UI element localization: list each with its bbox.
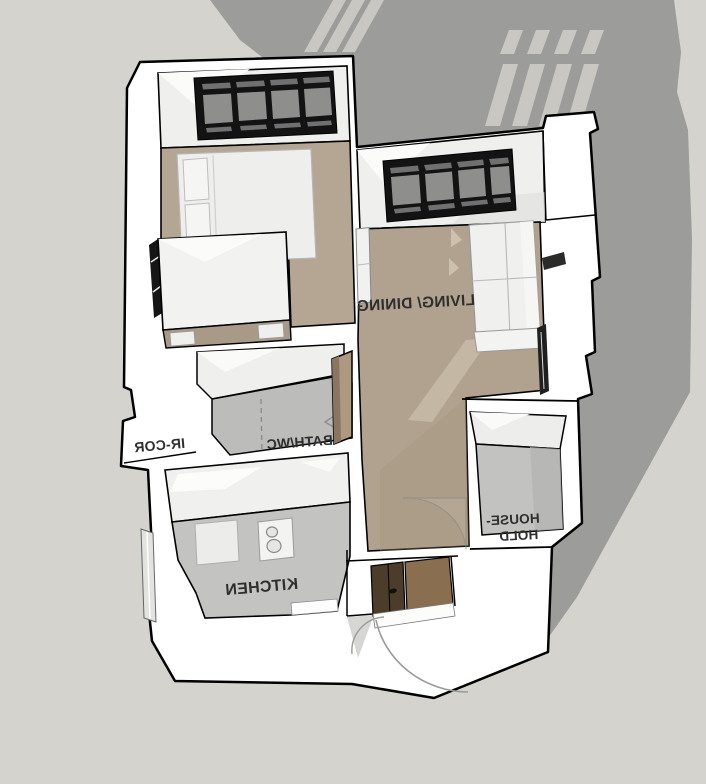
room-closet <box>149 232 291 348</box>
cooktop-icon <box>258 518 294 561</box>
floor-plan-render: BATH/WC IR-COR KITCHEN <box>0 0 706 784</box>
room-label-household-line2: HOLD <box>499 527 539 544</box>
room-bath-wc: BATH/WC <box>197 344 352 455</box>
drawer-unit <box>258 323 284 339</box>
living-window-icon <box>383 149 516 222</box>
drawer-unit <box>170 331 195 346</box>
entry-door <box>405 557 453 611</box>
sink-cabinet <box>195 520 239 565</box>
floor-plan-svg: BATH/WC IR-COR KITCHEN <box>0 0 706 784</box>
pillow <box>183 158 209 201</box>
room-label-household-line1: HOUSE- <box>486 511 540 529</box>
sofa <box>469 221 543 352</box>
bedroom-window-icon <box>194 71 337 140</box>
shelf <box>356 228 371 304</box>
